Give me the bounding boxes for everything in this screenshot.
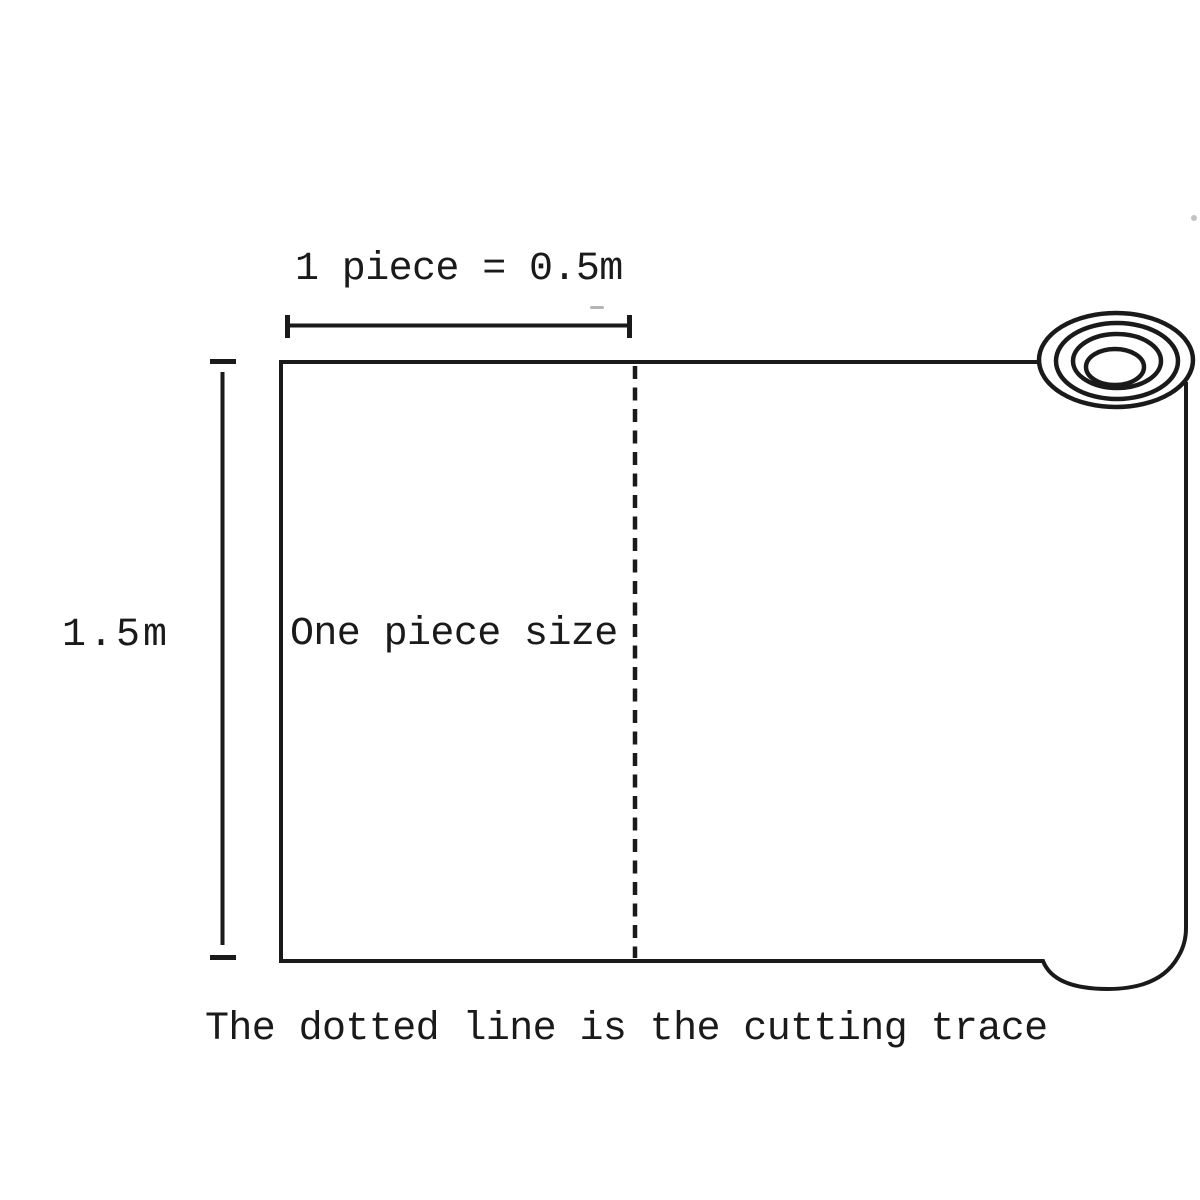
width-dimension-label: 1 piece = 0.5m [295, 248, 623, 292]
piece-size-label: One piece size [290, 613, 618, 657]
height-dimension-label: 1.5m [62, 614, 170, 658]
width-dimension-line [288, 315, 630, 338]
artifact-dot [1191, 215, 1197, 221]
roll-ring-inner [1086, 349, 1144, 385]
roll-ring-outer [1039, 313, 1193, 407]
fabric-roll-icon [1039, 313, 1193, 407]
height-dimension-line [210, 362, 236, 958]
diagram-page: 1 piece = 0.5m 1.5m One piece size The d… [0, 0, 1200, 1200]
sheet-outline [281, 362, 1186, 989]
artifact-dash [590, 306, 604, 309]
caption-text: The dotted line is the cutting trace [205, 1008, 1048, 1052]
